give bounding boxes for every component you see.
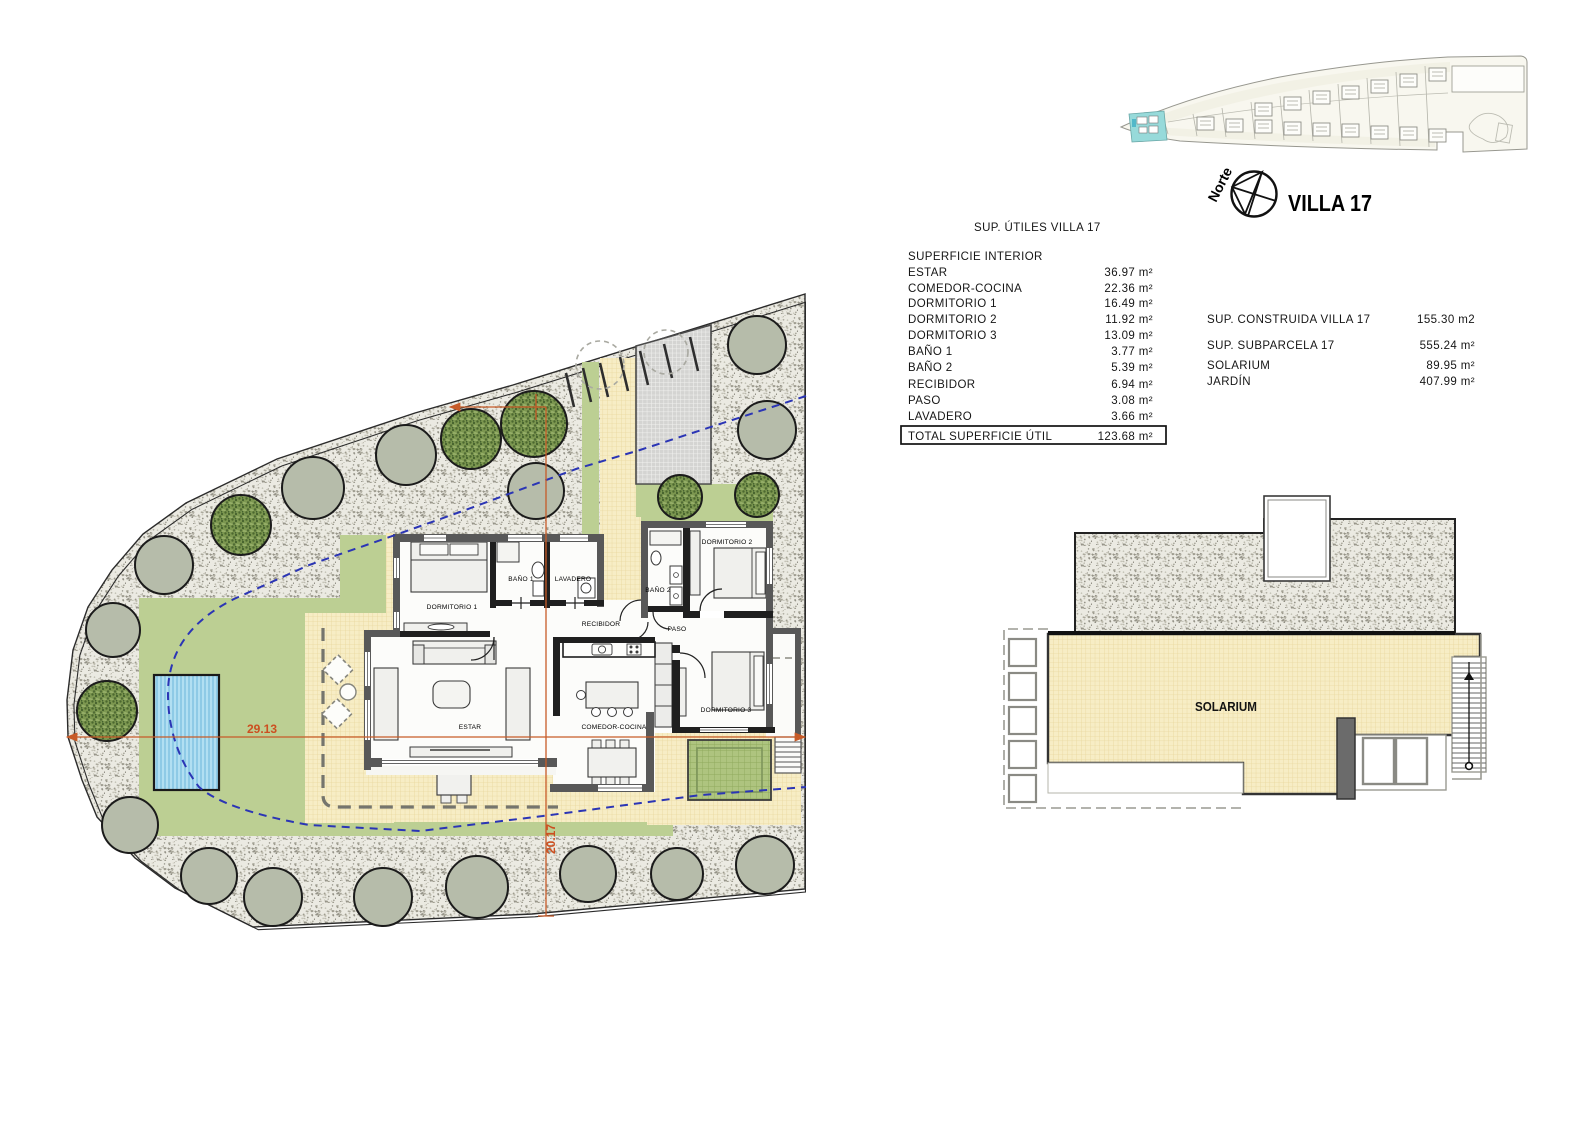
svg-text:LAVADERO: LAVADERO (555, 576, 592, 583)
svg-text:11.92 m²: 11.92 m² (1105, 314, 1153, 326)
svg-text:407.99 m²: 407.99 m² (1420, 376, 1475, 388)
svg-text:22.36 m²: 22.36 m² (1104, 283, 1153, 295)
svg-text:BAÑO 2: BAÑO 2 (908, 361, 953, 374)
svg-text:SUP. CONSTRUIDA VILLA 17: SUP. CONSTRUIDA VILLA 17 (1207, 314, 1370, 326)
svg-text:3.08 m²: 3.08 m² (1111, 395, 1153, 407)
svg-text:BAÑO 2: BAÑO 2 (645, 585, 671, 594)
svg-text:123.68 m²: 123.68 m² (1098, 431, 1153, 443)
svg-text:DORMITORIO 3: DORMITORIO 3 (908, 330, 997, 342)
svg-text:JARDÍN: JARDÍN (1207, 375, 1251, 388)
svg-text:SUP. SUBPARCELA 17: SUP. SUBPARCELA 17 (1207, 340, 1335, 352)
svg-text:16.49 m²: 16.49 m² (1104, 298, 1153, 310)
svg-text:BAÑO 1: BAÑO 1 (908, 345, 953, 358)
svg-text:6.94 m²: 6.94 m² (1111, 379, 1153, 391)
svg-text:COMEDOR-COCINA: COMEDOR-COCINA (908, 283, 1022, 295)
svg-text:DORMITORIO 2: DORMITORIO 2 (908, 314, 997, 326)
svg-text:PASO: PASO (668, 626, 687, 633)
svg-text:3.66 m²: 3.66 m² (1111, 411, 1153, 423)
svg-text:155.30 m2: 155.30 m2 (1417, 314, 1475, 326)
svg-text:5.39 m²: 5.39 m² (1111, 362, 1153, 374)
svg-text:LAVADERO: LAVADERO (908, 411, 972, 423)
svg-text:SOLARIUM: SOLARIUM (1195, 700, 1257, 714)
svg-text:ESTAR: ESTAR (459, 724, 482, 731)
svg-text:555.24 m²: 555.24 m² (1420, 340, 1475, 352)
svg-text:VILLA 17: VILLA 17 (1288, 190, 1372, 216)
svg-text:TOTAL SUPERFICIE ÚTIL: TOTAL SUPERFICIE ÚTIL (908, 430, 1052, 443)
svg-text:SOLARIUM: SOLARIUM (1207, 360, 1270, 372)
svg-text:ESTAR: ESTAR (908, 267, 948, 279)
svg-text:36.97 m²: 36.97 m² (1104, 267, 1153, 279)
svg-text:DORMITORIO 3: DORMITORIO 3 (701, 707, 752, 714)
svg-text:3.77 m²: 3.77 m² (1111, 346, 1153, 358)
svg-text:DORMITORIO 2: DORMITORIO 2 (702, 539, 753, 546)
svg-text:RECIBIDOR: RECIBIDOR (908, 379, 976, 391)
svg-text:DORMITORIO 1: DORMITORIO 1 (908, 298, 997, 310)
svg-text:20.17: 20.17 (544, 824, 558, 854)
svg-text:BAÑO 1: BAÑO 1 (508, 574, 534, 583)
svg-text:DORMITORIO 1: DORMITORIO 1 (427, 604, 478, 611)
svg-text:COMEDOR-COCINA: COMEDOR-COCINA (581, 724, 646, 731)
svg-text:89.95 m²: 89.95 m² (1426, 360, 1475, 372)
svg-text:13.09 m²: 13.09 m² (1104, 330, 1153, 342)
svg-text:SUP. ÚTILES VILLA 17: SUP. ÚTILES VILLA 17 (974, 221, 1101, 234)
svg-text:SUPERFICIE INTERIOR: SUPERFICIE INTERIOR (908, 251, 1043, 263)
svg-text:29.13: 29.13 (247, 722, 277, 736)
svg-text:RECIBIDOR: RECIBIDOR (582, 621, 620, 628)
svg-text:PASO: PASO (908, 395, 941, 407)
